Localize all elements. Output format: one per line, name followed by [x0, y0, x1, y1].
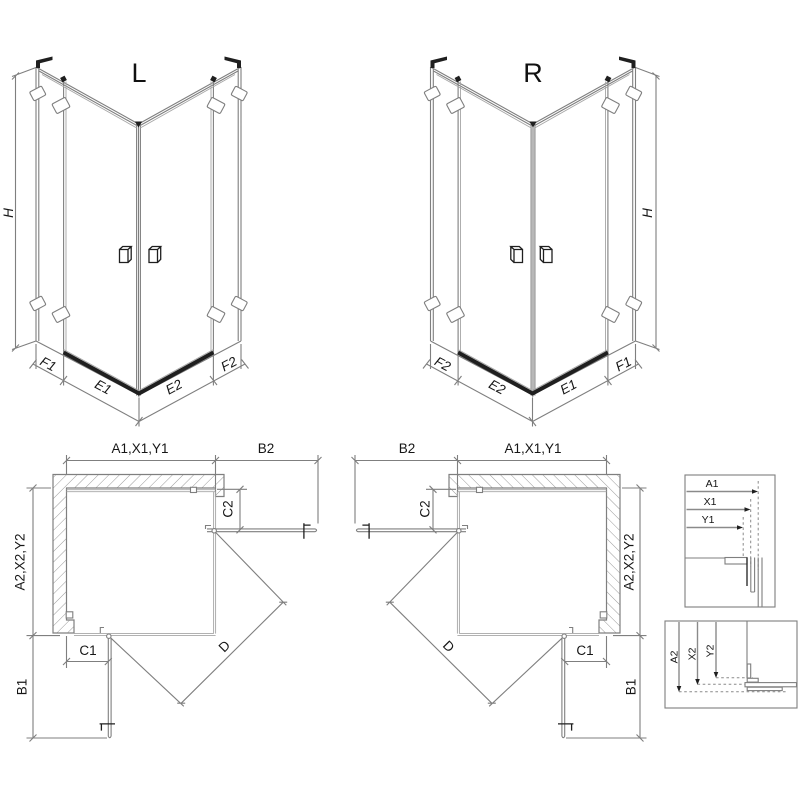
plan-view-geometry-mirrored: [352, 455, 647, 742]
right-view-title: R: [523, 58, 543, 88]
handle-knob: [120, 247, 132, 263]
wall-hatched-band: [53, 475, 224, 634]
b1-label: B1: [624, 679, 639, 696]
pivot-brackets: [100, 526, 211, 634]
f1-label: F1: [38, 354, 59, 375]
y1-label: Y1: [702, 514, 715, 526]
hinge: [231, 86, 248, 101]
glass-bracket-notch: [66, 612, 73, 618]
tray-footprint-lines: [67, 490, 216, 636]
profile-section: [747, 687, 782, 690]
diagonal-label: D: [440, 638, 458, 656]
glass-bracket-notch: [191, 487, 197, 492]
profile-section: [745, 683, 797, 687]
height-label: H: [640, 208, 655, 218]
x2-label: X2: [687, 647, 699, 660]
plan-dimension-lines: [27, 455, 322, 742]
side-height-label: A2,X2,Y2: [622, 533, 637, 590]
hinge: [29, 86, 46, 101]
right-3d-labels: R H F2 E2 E1 F1: [432, 58, 655, 398]
b2-label: B2: [258, 441, 275, 456]
door-pivot: [107, 634, 111, 638]
hinge: [207, 97, 225, 114]
top-width-label: A1,X1,Y1: [111, 441, 168, 456]
c2-label: C2: [221, 500, 236, 517]
door-pivot: [212, 529, 216, 533]
detail-box-border: [665, 621, 797, 708]
hinge: [52, 306, 70, 323]
diagonal-dimension: [111, 533, 288, 707]
hinge: [52, 97, 70, 114]
left-3d-labels: L H F1 E1 E2 F2: [1, 58, 240, 398]
c1-label: C1: [576, 643, 593, 658]
handle-knob: [149, 247, 161, 263]
b1-label: B1: [15, 679, 30, 696]
top-width-label: A1,X1,Y1: [504, 441, 561, 456]
f2-label: F2: [218, 353, 239, 374]
door-handle-marks: [100, 523, 311, 730]
hinge: [29, 296, 46, 311]
profile-section: [747, 664, 751, 678]
glass-wall-lines: [36, 67, 241, 397]
a2-label: A2: [669, 650, 681, 663]
height-label: H: [1, 208, 16, 218]
f2-label: F2: [432, 354, 453, 375]
left-view-title: L: [131, 58, 146, 88]
x1-label: X1: [704, 496, 717, 508]
side-height-label: A2,X2,Y2: [13, 533, 28, 590]
plan-view-geometry: [27, 455, 322, 742]
reference-dashed-lines: [743, 481, 758, 570]
shower-enclosure-technical-drawing: L H F1 E1 E2 F2 R H F2 E2 E1 F1: [0, 0, 800, 800]
y2-label: Y2: [705, 644, 717, 657]
profile-section: [747, 678, 758, 682]
f1-label: F1: [613, 354, 634, 375]
open-door-bottom: [108, 638, 111, 738]
detail-box-horizontal-offsets: A1 X1 Y1: [685, 475, 775, 607]
offset-arrows: [687, 492, 753, 528]
b2-label: B2: [399, 441, 416, 456]
a1-label: A1: [706, 478, 719, 490]
diagonal-label: D: [216, 637, 234, 655]
profile-section-lines: [751, 558, 762, 607]
profile-section: [725, 558, 747, 565]
hinge: [207, 306, 225, 323]
open-doors: [100, 523, 317, 737]
c1-label: C1: [79, 643, 96, 658]
detail-box-vertical-offsets: A2 X2 Y2: [665, 621, 797, 708]
hinge: [231, 296, 248, 311]
wall-edges: [36, 67, 241, 397]
open-door-right: [207, 529, 317, 532]
c2-label: C2: [418, 500, 433, 517]
